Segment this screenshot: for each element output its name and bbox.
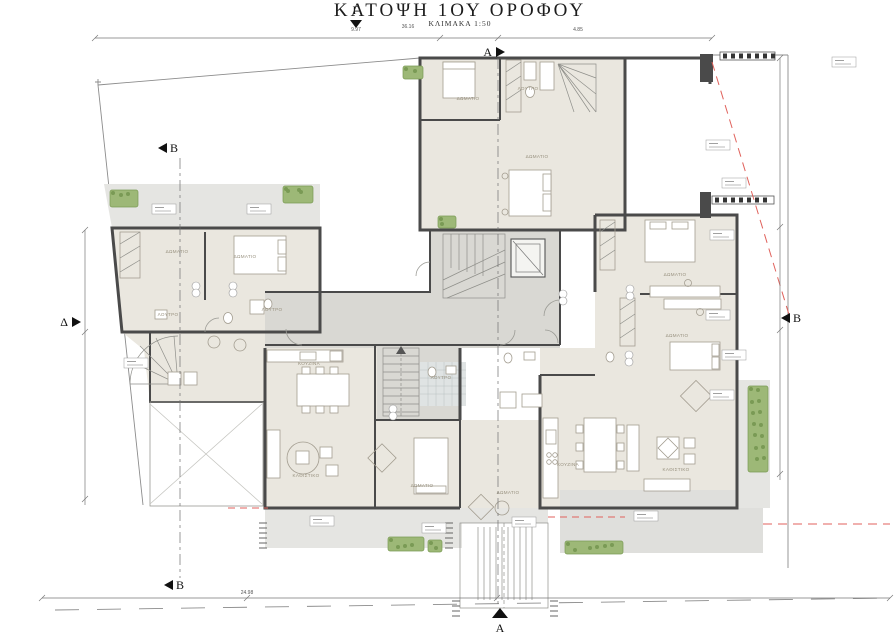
plant-blob xyxy=(754,446,758,450)
dimension-tag xyxy=(310,516,334,526)
planter-greenery xyxy=(565,541,623,554)
plant-blob xyxy=(595,545,599,549)
plant-blob xyxy=(751,411,755,415)
dimension-tag-box xyxy=(152,204,176,214)
railing-segment xyxy=(720,52,775,60)
section-marker-B: B xyxy=(164,578,184,592)
dimension-tag-box xyxy=(710,230,734,240)
plant-blob xyxy=(755,457,759,461)
plant-blob xyxy=(403,544,407,548)
plant-blob xyxy=(286,189,290,193)
door-tag-circle xyxy=(229,289,237,297)
plant-blob xyxy=(413,69,417,73)
dimension-tag xyxy=(710,230,734,240)
dimension-tag-box xyxy=(710,390,734,400)
section-arrow-icon xyxy=(158,143,167,153)
room-label: ΔΩΜΑΤΙΟ xyxy=(166,249,189,254)
dimension-tag xyxy=(124,358,148,368)
planter-greenery xyxy=(428,540,442,552)
foyer-center-bottom xyxy=(460,420,540,523)
railing-segment xyxy=(712,196,774,204)
floor-plan-page: ΔΩΜΑΤΙΟΛΟΥΤΡΟΔΩΜΑΤΙΟΔΩΜΑΤΙΟΔΩΜΑΤΙΟΛΟΥΤΡΟ… xyxy=(0,0,895,640)
room-label: ΛΟΥΤΡΟ xyxy=(431,375,452,380)
plant-blob xyxy=(439,217,443,221)
room-label: ΚΟΥΖΙΝΑ xyxy=(557,462,580,467)
dimension-label: 24.98 xyxy=(241,590,254,596)
plant-blob xyxy=(752,422,756,426)
section-letter: B xyxy=(170,141,178,155)
plant-blob xyxy=(610,543,614,547)
room-label: ΛΟΥΤΡΟ xyxy=(262,307,283,312)
room-label: ΛΟΥΤΡΟ xyxy=(518,86,539,91)
dimension-tag xyxy=(722,350,746,360)
room-label: ΔΩΜΑΤΙΟ xyxy=(234,254,257,259)
railing-bar xyxy=(755,54,759,59)
plant-blob xyxy=(396,545,400,549)
plant-blob xyxy=(404,67,408,71)
dimension-tag xyxy=(422,523,446,533)
railing-bar xyxy=(755,198,759,203)
dimension-label: 4.85 xyxy=(573,27,583,33)
room-label: ΛΟΥΤΡΟ xyxy=(158,312,179,317)
railing-bar xyxy=(771,54,775,59)
plant-blob xyxy=(588,546,592,550)
elevator xyxy=(511,239,545,277)
section-arrow-icon xyxy=(496,47,505,57)
dimension-tag-box xyxy=(247,204,271,214)
plant-blob xyxy=(434,546,438,550)
plant-blob xyxy=(758,410,762,414)
void-area xyxy=(150,402,263,506)
planter-greenery xyxy=(438,216,456,228)
plant-blob xyxy=(299,190,303,194)
plant-blob xyxy=(119,193,123,197)
plant-blob xyxy=(756,388,760,392)
section-letter: B xyxy=(176,578,184,592)
dimension-label: 36.16 xyxy=(402,24,415,30)
section-marker-Δ: Δ xyxy=(60,315,81,329)
section-letter: A xyxy=(496,621,505,635)
plant-blob xyxy=(429,541,433,545)
section-arrow-icon xyxy=(72,317,81,327)
dimension-tag xyxy=(832,57,856,67)
dimension-tag-box xyxy=(722,350,746,360)
railing-bar xyxy=(763,54,767,59)
dimension-tag xyxy=(247,204,271,214)
planter-greenery xyxy=(110,190,138,207)
room-label: ΔΩΜΑΤΙΟ xyxy=(664,272,687,277)
section-arrow-icon xyxy=(492,608,508,618)
room-label: ΚΑΘΙΣΤΙΚΟ xyxy=(663,467,690,472)
dimension-tag xyxy=(706,140,730,150)
dimension-tag-box xyxy=(634,511,658,521)
planter-box xyxy=(388,537,424,551)
railing-bar xyxy=(747,198,751,203)
floor-plan-drawing: ΔΩΜΑΤΙΟΛΟΥΤΡΟΔΩΜΑΤΙΟΔΩΜΑΤΙΟΔΩΜΑΤΙΟΛΟΥΤΡΟ… xyxy=(0,0,895,640)
plant-blob xyxy=(750,400,754,404)
railing-bar xyxy=(723,198,727,203)
section-arrow-icon xyxy=(781,313,790,323)
dimension-tag xyxy=(710,390,734,400)
railing-bar xyxy=(747,54,751,59)
dimension-tag-box xyxy=(422,523,446,533)
dimension-tag-box xyxy=(722,178,746,188)
room-label: ΔΩΜΑΤΙΟ xyxy=(526,154,549,159)
dimension-tag-box xyxy=(124,358,148,368)
plant-blob xyxy=(603,544,607,548)
section-marker-A: A xyxy=(492,608,508,635)
dimension-tag xyxy=(512,517,536,527)
plant-blob xyxy=(440,222,444,226)
scale-label: ΚΛΙΜΑΚΑ 1:50 xyxy=(428,19,491,28)
door-tag-circle xyxy=(192,289,200,297)
section-letter: A xyxy=(483,45,492,59)
door-tag-circle xyxy=(389,412,397,420)
section-marker-B: B xyxy=(158,141,178,155)
dimension-tag xyxy=(634,511,658,521)
plant-blob xyxy=(566,542,570,546)
page-title: ΚΑΤΟΨΗ 1ΟΥ ΟΡΟΦΟΥ xyxy=(334,0,586,21)
railing-bar xyxy=(739,54,743,59)
planter-greenery xyxy=(403,66,423,79)
planter-greenery xyxy=(283,186,313,203)
planter-greenery xyxy=(748,386,768,472)
plant-blob xyxy=(761,445,765,449)
planter-box xyxy=(565,541,623,554)
room-label: ΔΩΜΑΤΙΟ xyxy=(666,333,689,338)
dimension-tag-box xyxy=(512,517,536,527)
plant-blob xyxy=(126,192,130,196)
section-marker-B: B xyxy=(781,311,801,325)
room-label: ΔΩΜΑΤΙΟ xyxy=(411,483,434,488)
dimension-tag xyxy=(722,178,746,188)
railing-bar xyxy=(731,54,735,59)
dimension-tag-box xyxy=(832,57,856,67)
plant-blob xyxy=(111,191,115,195)
room-label: ΚΑΘΙΣΤΙΚΟ xyxy=(293,473,320,478)
dimension-label: 9.97 xyxy=(351,27,361,33)
railing-bar xyxy=(739,198,743,203)
railing-bar xyxy=(763,198,767,203)
plant-blob xyxy=(757,399,761,403)
room-label: ΔΩΜΑΤΙΟ xyxy=(497,490,520,495)
dimension-tag xyxy=(706,310,730,320)
door-tag-circle xyxy=(625,358,633,366)
room-label: ΔΩΜΑΤΙΟ xyxy=(457,96,480,101)
railing-bar xyxy=(723,54,727,59)
dimension-tag-box xyxy=(706,140,730,150)
planter-greenery xyxy=(388,537,424,551)
railing-bar xyxy=(715,198,719,203)
plant-blob xyxy=(389,538,393,542)
plant-blob xyxy=(762,456,766,460)
plant-blob xyxy=(573,548,577,552)
door-tag-circle xyxy=(559,297,567,305)
section-letter: B xyxy=(793,311,801,325)
plant-blob xyxy=(410,543,414,547)
plant-blob xyxy=(760,434,764,438)
title-block: ΚΑΤΟΨΗ 1ΟΥ ΟΡΟΦΟΥ ΚΛΙΜΑΚΑ 1:50 xyxy=(334,0,586,28)
room-label: ΚΟΥΖΙΝΑ xyxy=(298,361,321,366)
plant-blob xyxy=(749,387,753,391)
plant-blob xyxy=(753,433,757,437)
door-tag-circle xyxy=(626,292,634,300)
section-letter: Δ xyxy=(60,315,68,329)
railing-bar xyxy=(731,198,735,203)
entrance-stair xyxy=(460,523,548,608)
dimension-tag-box xyxy=(706,310,730,320)
plant-blob xyxy=(759,423,763,427)
dimension-tag-box xyxy=(310,516,334,526)
dimension-tag xyxy=(152,204,176,214)
section-arrow-icon xyxy=(164,580,173,590)
